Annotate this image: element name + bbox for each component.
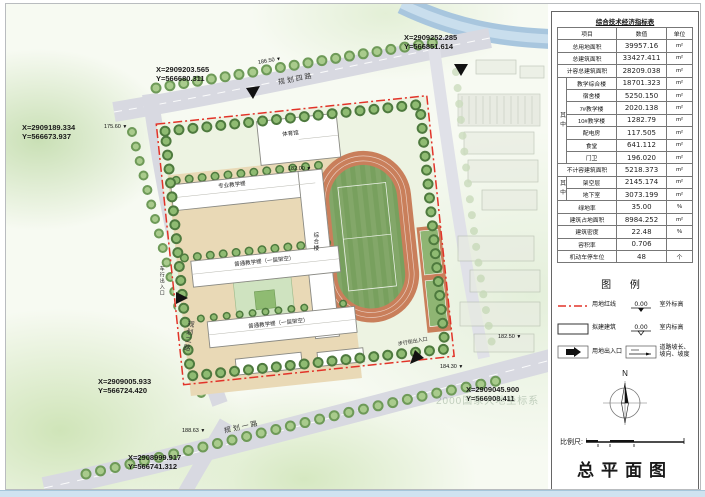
table-row: 10#教学楼1282.79m²	[558, 114, 693, 126]
north-label: N	[622, 369, 628, 378]
title-block-panel: 综合技术经济指标表 项目 数值 单位 总用地面积39957.16m² 总建筑面积…	[551, 11, 699, 490]
campus	[156, 96, 455, 397]
table-row: 机动车停车位48个	[558, 251, 693, 263]
table-row: 食堂641.112m²	[558, 139, 693, 151]
legend: 图 例 用地红线 0.00 室外标高 拟建建筑	[557, 274, 692, 368]
legend-item-road-slope: 道路坡长、坡向、坡度	[625, 345, 693, 359]
spot-elevation: 182.50 ▼	[498, 334, 521, 341]
legend-item-outdoor-elevation: 0.00 室外标高	[625, 299, 693, 313]
master-plan-sheet: X=2909252.285Y=566851.614 X=2909203.565Y…	[0, 0, 705, 497]
table-row: 7#教学楼2020.138m²	[558, 102, 693, 114]
coordinate-label: X=2908999.917Y=566741.312	[128, 454, 181, 471]
table-row: 配电房117.505m²	[558, 127, 693, 139]
table-header-row: 项目 数值 单位	[558, 28, 693, 40]
indoor-elevation-icon: 0.00	[625, 322, 657, 336]
legend-item-redline: 用地红线	[557, 299, 625, 313]
spot-elevation: 182.00 ▼	[288, 166, 311, 173]
redline-swatch-icon	[557, 299, 589, 313]
legend-title: 图 例	[557, 276, 692, 291]
north-arrow: N	[602, 367, 648, 436]
existing-buildings	[456, 60, 544, 354]
scale-label: 比例尺:	[560, 437, 583, 447]
window-bottom-strip	[0, 490, 705, 497]
svg-text:0.00: 0.00	[634, 324, 648, 331]
outdoor-elevation-icon: 0.00	[625, 299, 657, 313]
legend-item-proposed-building: 拟建建筑	[557, 322, 625, 336]
table-row: 总建筑面积33427.411m²	[558, 52, 693, 64]
table-row: 门卫196.020m²	[558, 151, 693, 163]
coordinate-label: X=2909252.285Y=566851.614	[404, 34, 457, 51]
building-label: 综合楼	[312, 232, 318, 252]
table-title: 综合技术经济指标表	[552, 16, 698, 26]
legend-item-indoor-elevation: 0.00 室内标高	[625, 322, 693, 336]
table-row: 容积率0.706	[558, 238, 693, 250]
scale-bar: 比例尺:	[560, 436, 690, 448]
spot-elevation: 184.30 ▼	[440, 364, 463, 371]
proposed-building-swatch-icon	[557, 322, 589, 336]
table-row: 建筑占地面积8984.252m²	[558, 213, 693, 225]
table-row: 建筑密度22.48%	[558, 226, 693, 238]
table-row: 宿舍楼5250.150m²	[558, 89, 693, 101]
spot-elevation: 175.60 ▼	[104, 124, 127, 131]
coordinate-label: X=2909005.933Y=566724.420	[98, 378, 151, 395]
coordinate-system-watermark: 2000国家大地坐标系	[436, 396, 539, 408]
table-row: 计容总建筑面积28209.038m²	[558, 65, 693, 77]
site-entrance-arrow-icon	[557, 345, 589, 359]
table-row: 地下室3073.199m²	[558, 189, 693, 201]
svg-text:0.00: 0.00	[634, 301, 648, 308]
table-row: 绿地率35.00%	[558, 201, 693, 213]
table-row: 总用地面积39957.16m²	[558, 40, 693, 52]
legend-item-site-entrance: 用地出入口	[557, 345, 625, 359]
table-row: 其中架空层2145.174m²	[558, 176, 693, 188]
coordinate-label: X=2909203.565Y=566680.311	[156, 66, 209, 83]
coordinate-label: X=2909189.334Y=566673.937	[22, 124, 75, 141]
scale-bar-graphic	[586, 436, 686, 448]
table-row: 其中教学综合楼18701.323m²	[558, 77, 693, 89]
spot-elevation: 188.63 ▼	[182, 428, 205, 435]
site-plan-drawing: X=2909252.285Y=566851.614 X=2909203.565Y…	[6, 4, 548, 489]
drawing-title: 总平面图	[552, 456, 698, 481]
entrance-label: 车行出入口	[158, 266, 164, 296]
road-slope-icon	[625, 345, 657, 359]
table-row: 不计容建筑面积5218.373m²	[558, 164, 693, 176]
site-plan-canvas	[6, 4, 548, 489]
indicator-table: 项目 数值 单位 总用地面积39957.16m² 总建筑面积33427.411m…	[557, 27, 693, 263]
